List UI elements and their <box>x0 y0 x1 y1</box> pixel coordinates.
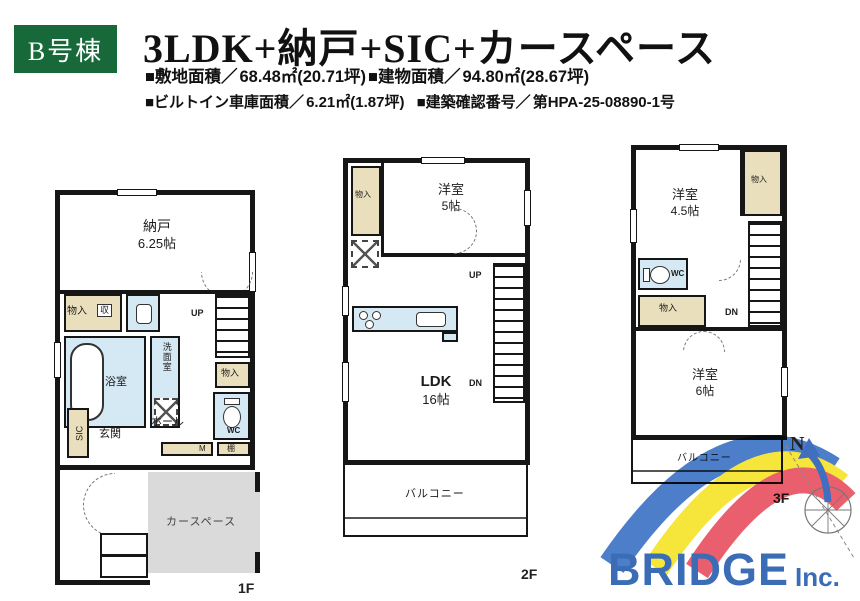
site-area-label: ■敷地面積／ <box>145 68 237 86</box>
wc-3f-label: WC <box>671 269 684 279</box>
wc-label: WC <box>227 426 240 436</box>
washbasin-icon <box>136 304 152 324</box>
window <box>117 189 157 196</box>
closet-3f-2-label: 物入 <box>659 303 677 314</box>
wall-mark <box>255 552 260 573</box>
compass: N <box>778 428 860 563</box>
shuno-label: 収 <box>97 304 112 317</box>
spec-line-1: ■敷地面積／68.48㎡(20.71坪)■建物面積／94.80㎡(28.67坪) <box>145 63 591 87</box>
floor-label-1f: 1F <box>238 580 254 596</box>
stairs-up-label: UP <box>191 308 204 319</box>
stairs <box>493 263 525 403</box>
window <box>781 367 788 397</box>
stairs <box>748 221 782 327</box>
stairs-dn-label: DN <box>725 307 738 318</box>
floor-label-2f: 2F <box>521 566 537 582</box>
site-area-value: 68.48㎡(20.71坪) <box>239 68 366 86</box>
kitchen-counter <box>352 306 458 332</box>
entrance-step <box>100 555 148 578</box>
washroom-label: 洗面室 <box>161 342 172 372</box>
exterior-wall <box>55 470 60 585</box>
window <box>342 362 349 402</box>
window <box>630 209 637 243</box>
room-label-ldk: LDK 16帖 <box>401 373 471 408</box>
company-logo-suffix: Inc. <box>795 564 840 591</box>
company-logo-brand: BRIDGE <box>608 549 789 592</box>
balcony-rail <box>345 517 526 519</box>
hall-label: ホール <box>151 416 184 429</box>
toilet-icon <box>643 268 650 282</box>
room-label-nando: 納戸 6.25帖 <box>107 218 207 251</box>
entrance-step <box>100 533 148 556</box>
genkan-label: 玄関 <box>99 428 121 441</box>
closet-1f-label: 物入 <box>67 306 87 318</box>
sic-label: SIC <box>75 418 86 448</box>
window <box>421 157 465 164</box>
window <box>342 286 349 316</box>
company-logo: BRIDGE Inc. <box>608 549 840 592</box>
interior-wall <box>740 150 743 216</box>
toilet-bowl-icon <box>223 406 241 428</box>
meter-label: M <box>199 444 206 454</box>
spec-line-2: ■ビルトイン車庫面積／6.21㎡(1.87坪) ■建築確認番号／第HPA-25-… <box>145 91 677 112</box>
exterior-wall <box>55 580 150 585</box>
stove-icon <box>372 311 381 320</box>
floor-plan-1f: 納戸 6.25帖 物入 収 浴室 洗面室 UP 物入 WC M 棚 SIC 玄関… <box>55 190 265 595</box>
building-area-value: 94.80㎡(28.67坪) <box>463 68 590 86</box>
stove-icon <box>359 311 368 320</box>
stairs <box>215 294 250 358</box>
kitchen-counter-return <box>442 332 458 342</box>
room-label-yoshitsu45: 洋室 4.5帖 <box>653 187 717 218</box>
garage-area-value: 6.21㎡(1.87坪) <box>306 94 404 111</box>
unit-badge-label: B号棟 <box>28 31 103 68</box>
entrance-door-arc <box>83 473 147 537</box>
bathroom-label: 浴室 <box>105 376 127 389</box>
toilet-bowl-icon <box>650 266 670 284</box>
closet-2f <box>351 166 381 236</box>
unit-badge: B号棟 <box>14 25 117 73</box>
floor-plan-2f: 物入 洋室 5帖 LDK 16帖 UP DN バルコニー 2F <box>343 158 540 583</box>
room-label-yoshitsu6: 洋室 6帖 <box>673 367 737 398</box>
stairs-dn-label: DN <box>469 378 482 389</box>
closet-3f-label: 物入 <box>751 175 767 185</box>
car-space: カースペース <box>148 472 260 573</box>
interior-wall <box>381 163 384 257</box>
window <box>679 144 719 151</box>
closet-2f-label: 物入 <box>355 190 371 200</box>
stairs-up-label: UP <box>469 270 482 281</box>
garage-area-label: ■ビルトイン車庫面積／ <box>145 94 304 111</box>
balcony-2f-label: バルコニー <box>405 488 465 501</box>
room-label-yoshitsu5: 洋室 5帖 <box>421 182 481 213</box>
window <box>524 190 531 226</box>
wall-mark <box>255 472 260 492</box>
interior-wall <box>381 253 525 257</box>
confirmation-value: 第HPA-25-08890-1号 <box>533 94 675 111</box>
fridge-space-icon <box>351 240 379 268</box>
confirmation-label: ■建築確認番号／ <box>417 94 531 111</box>
stove-icon <box>365 320 374 329</box>
closet-1f-2-label: 物入 <box>221 368 239 379</box>
toilet-icon <box>224 398 240 405</box>
north-label: N <box>790 433 805 455</box>
shelf-label: 棚 <box>227 444 235 454</box>
sink-icon <box>416 312 446 327</box>
window <box>54 342 61 378</box>
washroom: 洗面室 <box>150 336 180 428</box>
sic-closet: SIC <box>67 408 89 458</box>
building-area-label: ■建物面積／ <box>368 68 460 86</box>
washbasin-area <box>126 294 160 332</box>
car-space-label: カースペース <box>166 516 236 529</box>
interior-wall <box>636 327 782 331</box>
